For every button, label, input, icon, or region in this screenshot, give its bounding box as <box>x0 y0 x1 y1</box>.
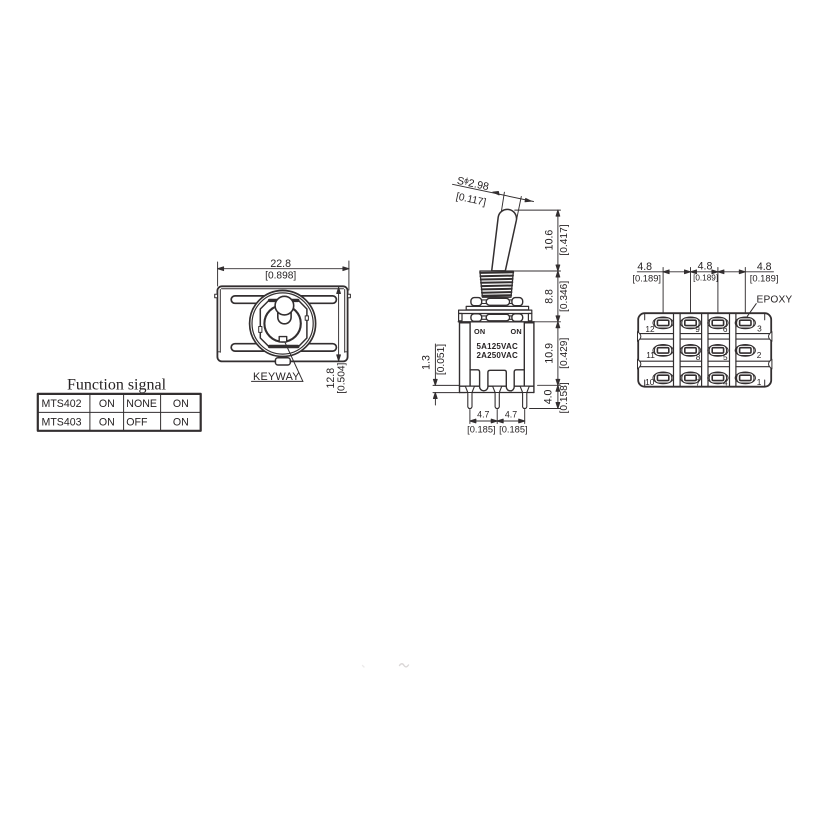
svg-text:ON: ON <box>173 417 189 429</box>
svg-text:[0.189]: [0.189] <box>632 272 661 283</box>
svg-text:3: 3 <box>757 324 762 334</box>
svg-text:8.8: 8.8 <box>544 289 556 304</box>
svg-text:[0.158]: [0.158] <box>559 382 570 413</box>
svg-text:11: 11 <box>646 350 655 360</box>
svg-text:[0.185]: [0.185] <box>467 425 495 435</box>
svg-text:ON: ON <box>99 417 115 429</box>
svg-text:10.9: 10.9 <box>544 343 556 364</box>
svg-text:1: 1 <box>757 377 762 387</box>
svg-text:12: 12 <box>645 324 655 334</box>
svg-text:4.8: 4.8 <box>698 261 713 273</box>
svg-text:[0.189]: [0.189] <box>750 272 779 283</box>
svg-text:ON: ON <box>511 327 522 336</box>
svg-text:NONE: NONE <box>126 398 157 410</box>
svg-text:[0.185]: [0.185] <box>499 425 527 435</box>
svg-text:MTS403: MTS403 <box>42 417 82 429</box>
svg-text:8: 8 <box>696 352 701 362</box>
svg-text:4.8: 4.8 <box>637 261 652 273</box>
svg-text:ON: ON <box>173 398 189 410</box>
svg-text:7: 7 <box>696 377 701 387</box>
svg-text:2A250VAC: 2A250VAC <box>476 351 517 360</box>
svg-text:Function signal: Function signal <box>67 376 167 393</box>
svg-text:[0.189]: [0.189] <box>693 273 718 282</box>
svg-text:MTS402: MTS402 <box>42 398 82 410</box>
svg-text:KEYWAY: KEYWAY <box>253 371 300 383</box>
svg-text:[0.898]: [0.898] <box>265 271 296 282</box>
svg-text:10: 10 <box>645 377 655 387</box>
svg-text:[0.346]: [0.346] <box>559 281 570 312</box>
svg-text:[0.429]: [0.429] <box>559 338 570 369</box>
svg-text:[0.051]: [0.051] <box>436 344 447 375</box>
svg-text:[0.504]: [0.504] <box>337 362 348 393</box>
svg-text:1.3: 1.3 <box>420 355 432 370</box>
svg-text:ON: ON <box>474 327 485 336</box>
svg-text:2: 2 <box>757 350 762 360</box>
svg-text:4.7: 4.7 <box>505 409 517 419</box>
svg-text:ON: ON <box>99 398 115 410</box>
svg-text:6: 6 <box>723 324 728 334</box>
svg-text:4.7: 4.7 <box>477 409 489 419</box>
svg-text:12.8: 12.8 <box>325 368 337 389</box>
svg-text:OFF: OFF <box>126 417 148 429</box>
svg-text:4: 4 <box>723 377 728 387</box>
svg-text:22.8: 22.8 <box>270 258 291 270</box>
svg-text:EPOXY: EPOXY <box>757 294 793 305</box>
svg-text:4.0: 4.0 <box>543 389 555 404</box>
svg-text:5: 5 <box>723 352 728 362</box>
svg-text:9: 9 <box>695 324 700 334</box>
svg-text:10.6: 10.6 <box>544 230 556 251</box>
svg-text:[0.417]: [0.417] <box>559 224 570 255</box>
svg-text:5A125VAC: 5A125VAC <box>476 342 517 351</box>
svg-text:4.8: 4.8 <box>757 261 772 273</box>
